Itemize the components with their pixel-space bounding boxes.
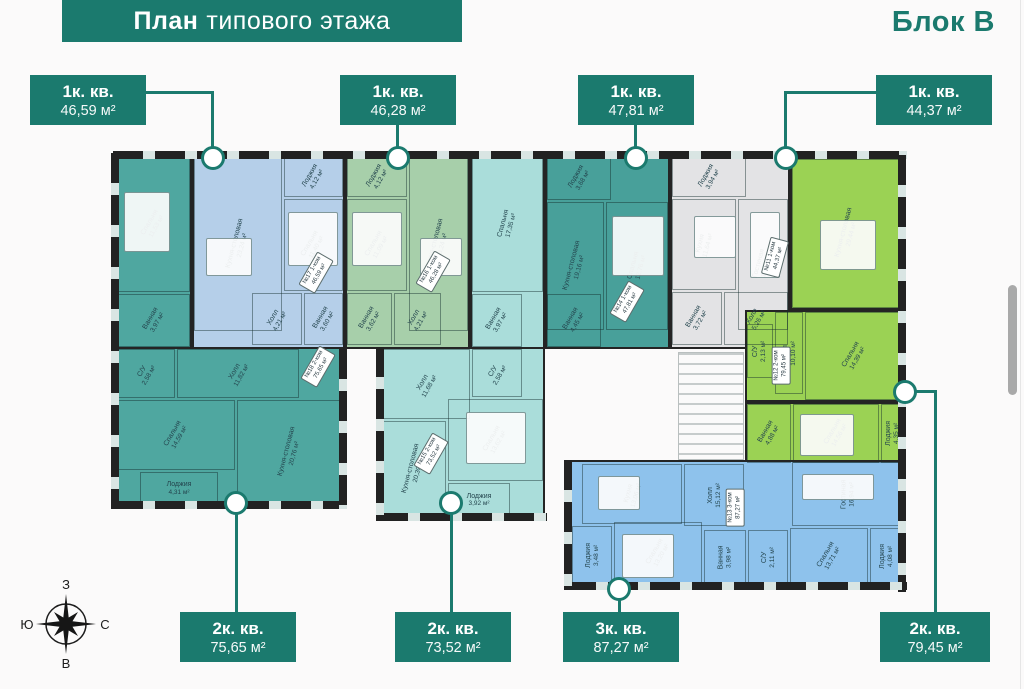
unit-number: №12 xyxy=(774,368,780,381)
callout-type: 1к. кв. xyxy=(610,82,661,102)
unit-area: 87,27 м² xyxy=(735,492,743,522)
callout-type: 1к. кв. xyxy=(62,82,113,102)
room-name: С/У xyxy=(761,551,769,562)
room: С/У2,58 м² xyxy=(117,349,175,398)
room-name: Лоджия xyxy=(879,544,887,569)
room: С/У2,11 м² xyxy=(748,530,788,584)
room-name: Холл xyxy=(707,487,715,504)
page-edge xyxy=(1020,0,1021,689)
compass-star xyxy=(36,594,96,654)
room: Спальня13,71 м² xyxy=(790,528,868,584)
leader-line xyxy=(146,91,213,94)
unit-area: 79,45 м² xyxy=(781,350,789,380)
room: Спальня14,39 м² xyxy=(805,312,903,400)
leader-line xyxy=(934,390,937,612)
callout-type: 1к. кв. xyxy=(372,82,423,102)
furniture-table xyxy=(820,220,876,270)
room: Холл11,82 м² xyxy=(177,349,299,398)
exterior-wall-courtyard xyxy=(564,460,572,590)
callout-area: 46,59 м² xyxy=(60,103,115,119)
room: С/У2,58 м² xyxy=(472,349,522,397)
room-area: 15,12 м² xyxy=(714,483,721,508)
furniture-bed xyxy=(800,414,854,456)
room-name: Ванная xyxy=(718,545,726,569)
exterior-wall-right xyxy=(898,155,906,592)
callout-type: 2к. кв. xyxy=(212,619,263,639)
room: Лоджия3,48 м² xyxy=(572,526,612,584)
compass-north-label: С xyxy=(100,617,109,632)
callout-anchor xyxy=(893,380,917,404)
furniture-bed xyxy=(612,216,664,276)
furniture-table xyxy=(694,216,736,258)
room-name: Лоджия xyxy=(885,421,893,446)
compass-rose: З Ю С В xyxy=(20,578,112,670)
callout-area: 46,28 м² xyxy=(370,103,425,119)
apartment-callout: 1к. кв.46,59 м² xyxy=(30,75,146,125)
page-title-bold: План xyxy=(134,7,199,36)
room: Лоджия3,68 м² xyxy=(547,157,611,200)
unit-label: №13 3-ком87,27 м² xyxy=(726,488,745,526)
furniture-bed xyxy=(352,212,402,266)
callout-anchor xyxy=(439,491,463,515)
exterior-wall-notch-right xyxy=(339,349,347,509)
unit-label: №12 2-ком79,45 м² xyxy=(772,346,791,384)
room: С/У2,13 м² xyxy=(747,324,773,378)
unit-type: 2-ком xyxy=(774,350,780,366)
callout-area: 73,52 м² xyxy=(425,640,480,656)
room: Холл4,21 м² xyxy=(252,293,302,345)
room: Ванная3,97 м² xyxy=(472,294,522,347)
leader-line xyxy=(211,91,214,147)
room: Ванная3,60 м² xyxy=(304,293,343,345)
furniture-table xyxy=(206,238,252,276)
callout-anchor xyxy=(224,491,248,515)
room: Спальня14,59 м² xyxy=(117,400,235,470)
room-area: 4,31 м² xyxy=(168,489,189,496)
leader-line xyxy=(618,600,621,612)
furniture-bed xyxy=(124,192,170,252)
callout-area: 47,81 м² xyxy=(608,103,663,119)
floor-plan-page: План типового этажа Блок В Спальня11,53 … xyxy=(0,0,1024,689)
callout-anchor xyxy=(607,577,631,601)
leader-line xyxy=(634,125,637,147)
apartment-callout: 2к. кв.75,65 м² xyxy=(180,612,296,662)
apartment-callout: 1к. кв.46,28 м² xyxy=(340,75,456,125)
leader-line xyxy=(784,91,787,147)
room: Спальня17,35 м² xyxy=(472,157,543,292)
room: Холл4,21 м² xyxy=(394,293,441,345)
callout-type: 2к. кв. xyxy=(427,619,478,639)
callout-type: 1к. кв. xyxy=(908,82,959,102)
compass-south-label: Ю xyxy=(20,617,33,632)
room-area: 2,11 м² xyxy=(768,547,775,568)
leader-line xyxy=(784,91,877,94)
callout-type: 3к. кв. xyxy=(595,619,646,639)
room-name: Лоджия xyxy=(585,543,593,568)
room-name: Лоджия xyxy=(167,481,192,489)
furniture-bed xyxy=(622,534,674,578)
callout-area: 87,27 м² xyxy=(593,640,648,656)
exterior-wall-notch-left xyxy=(376,347,384,521)
stairwell xyxy=(678,352,744,460)
unit-type: 3-ком xyxy=(728,492,734,508)
apartment-callout: 2к. кв.73,52 м² xyxy=(395,612,511,662)
room: Ванная3,97 м² xyxy=(117,294,190,347)
room: Лоджия4,12 м² xyxy=(284,157,343,197)
exterior-wall-left xyxy=(111,153,119,509)
room-area: 3,98 м² xyxy=(725,546,732,567)
apartment-callout: 3к. кв.87,27 м² xyxy=(563,612,679,662)
leader-line xyxy=(235,514,238,612)
room: Лоджия3,94 м² xyxy=(672,157,746,197)
callout-anchor xyxy=(201,146,225,170)
room-area: 3,92 м² xyxy=(468,500,489,507)
room: Ванная3,62 м² xyxy=(347,293,392,345)
exterior-wall-bottom-mid xyxy=(378,513,547,521)
unit-number: №11 xyxy=(764,258,773,272)
room: Ванная3,72 м² xyxy=(672,292,722,345)
apartment-callout: 2к. кв.79,45 м² xyxy=(880,612,990,662)
callout-area: 79,45 м² xyxy=(907,640,962,656)
furniture-bed xyxy=(466,412,526,464)
apartment-callout: 1к. кв.44,37 м² xyxy=(876,75,992,125)
room-area: 3,48 м² xyxy=(592,544,599,565)
page-title: План типового этажа xyxy=(62,0,462,42)
unit-number: №13 xyxy=(728,510,734,523)
callout-type: 2к. кв. xyxy=(909,619,960,639)
room-area: 4,08 м² xyxy=(887,545,894,566)
callout-area: 75,65 м² xyxy=(210,640,265,656)
room: Ванная4,88 м² xyxy=(747,404,791,463)
room: Ванная3,98 м² xyxy=(704,530,746,584)
compass-east-label: В xyxy=(62,656,71,670)
apartment-callout: 1к. кв.47,81 м² xyxy=(578,75,694,125)
scrollbar-thumb[interactable] xyxy=(1008,285,1017,395)
furniture-sofa xyxy=(802,474,874,500)
leader-line xyxy=(450,514,453,612)
callout-anchor xyxy=(774,146,798,170)
room: Ванная4,45 м² xyxy=(547,294,601,347)
furniture-table xyxy=(598,476,640,510)
leader-line xyxy=(396,125,399,147)
room-area: 2,13 м² xyxy=(760,340,767,361)
page-title-rest: типового этажа xyxy=(206,7,390,36)
room: Кухня-столовая20,76 м² xyxy=(237,400,343,505)
callout-anchor xyxy=(386,146,410,170)
callout-area: 44,37 м² xyxy=(906,103,961,119)
room-name: Лоджия xyxy=(467,493,492,501)
block-label: Блок В xyxy=(810,6,995,39)
callout-anchor xyxy=(624,146,648,170)
compass-west-label: З xyxy=(62,578,70,592)
